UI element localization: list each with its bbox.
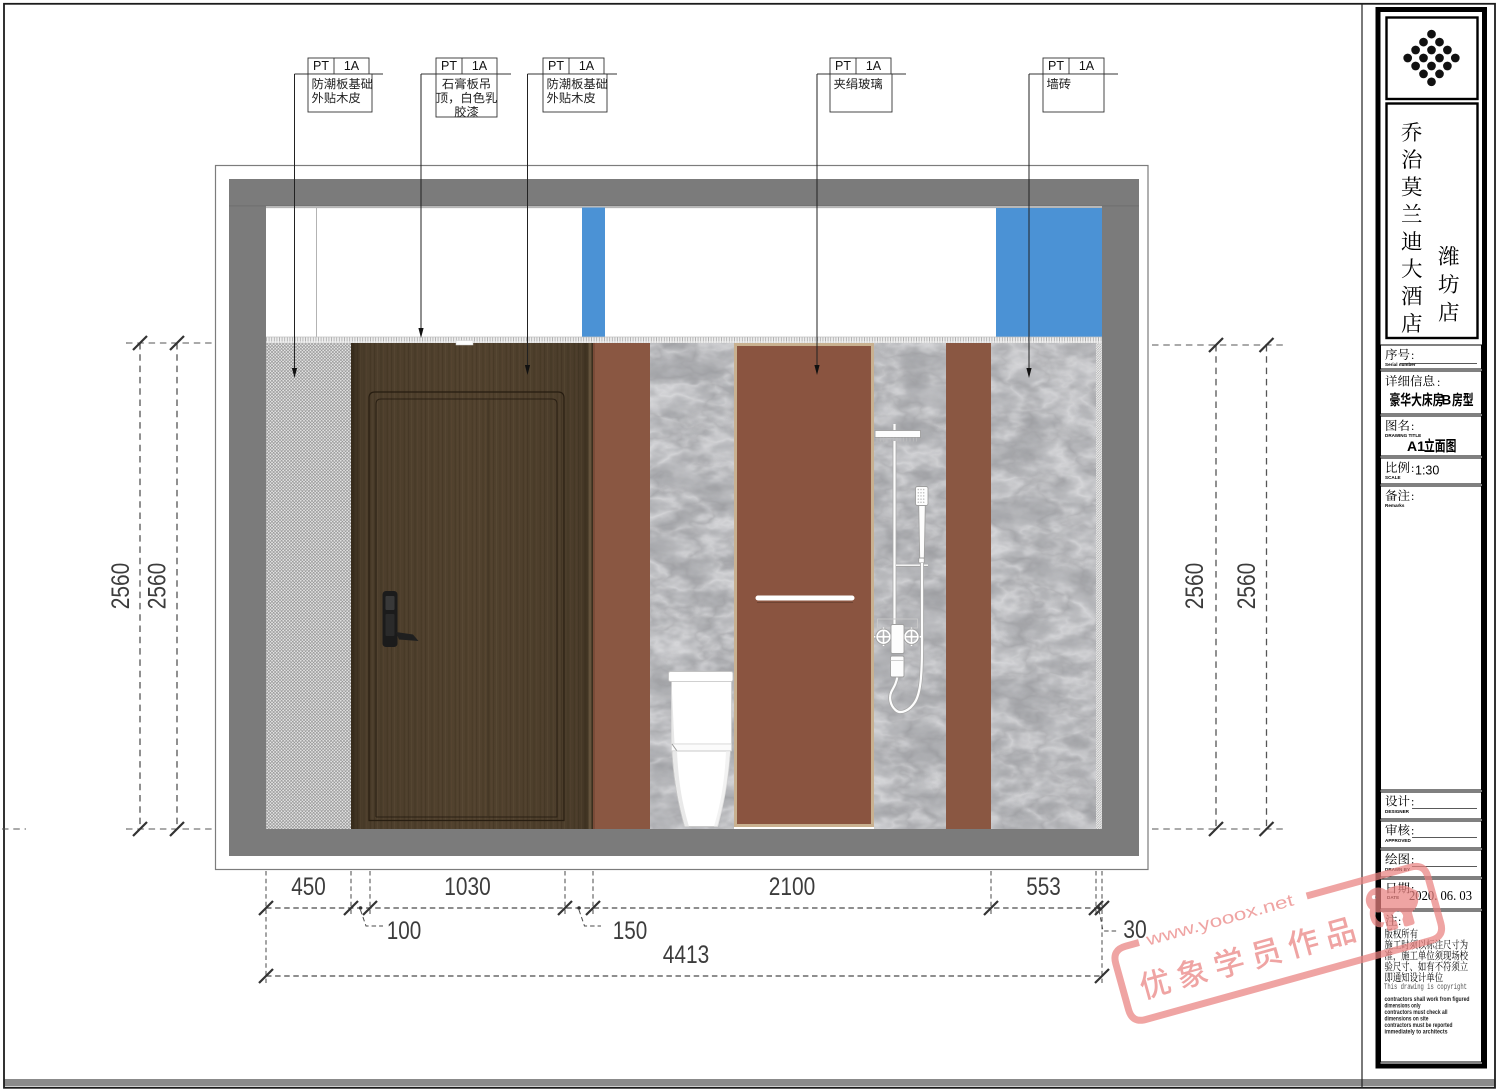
svg-text:SCALE: SCALE: [1385, 475, 1401, 480]
svg-text::: :: [1411, 348, 1414, 362]
svg-text:PT: PT: [441, 59, 457, 73]
svg-text:PT: PT: [313, 59, 329, 73]
svg-text:immediately to architects: immediately to architects: [1385, 1029, 1449, 1036]
svg-text:PT: PT: [835, 59, 851, 73]
svg-text::: :: [1411, 461, 1414, 475]
svg-text:B: B: [1442, 393, 1452, 408]
svg-text:2560: 2560: [144, 563, 172, 610]
svg-text:1A: 1A: [344, 59, 360, 73]
svg-text:Remarks: Remarks: [1385, 503, 1405, 508]
svg-text::: :: [1411, 489, 1414, 503]
svg-text:4413: 4413: [663, 941, 710, 969]
svg-text:100: 100: [387, 917, 422, 945]
svg-text:1030: 1030: [444, 873, 491, 901]
svg-text:150: 150: [613, 917, 648, 945]
svg-text:2560: 2560: [1181, 563, 1209, 610]
svg-text:PT: PT: [548, 59, 564, 73]
svg-text:1A: 1A: [472, 59, 488, 73]
svg-text:1:30: 1:30: [1415, 464, 1439, 478]
svg-text::: :: [1411, 824, 1414, 838]
svg-text:553: 553: [1026, 873, 1061, 901]
svg-text:PT: PT: [1048, 59, 1064, 73]
svg-text:2560: 2560: [107, 563, 135, 610]
svg-text:A1: A1: [1407, 438, 1425, 454]
svg-text:2100: 2100: [769, 873, 816, 901]
svg-text:APPROVED: APPROVED: [1385, 838, 1411, 843]
svg-text::: :: [1411, 795, 1414, 809]
svg-text::: :: [1411, 419, 1414, 433]
svg-text:1A: 1A: [1079, 59, 1095, 73]
svg-text::: :: [1437, 375, 1440, 389]
svg-text:450: 450: [291, 873, 326, 901]
svg-text:1A: 1A: [866, 59, 882, 73]
svg-text:DESIGNER: DESIGNER: [1385, 809, 1410, 814]
svg-text:This drawing is copyright: This drawing is copyright: [1384, 983, 1467, 992]
svg-text:2560: 2560: [1233, 563, 1261, 610]
svg-text:1A: 1A: [579, 59, 595, 73]
svg-text:Serial number: Serial number: [1385, 362, 1416, 367]
svg-text:30: 30: [1123, 916, 1147, 944]
